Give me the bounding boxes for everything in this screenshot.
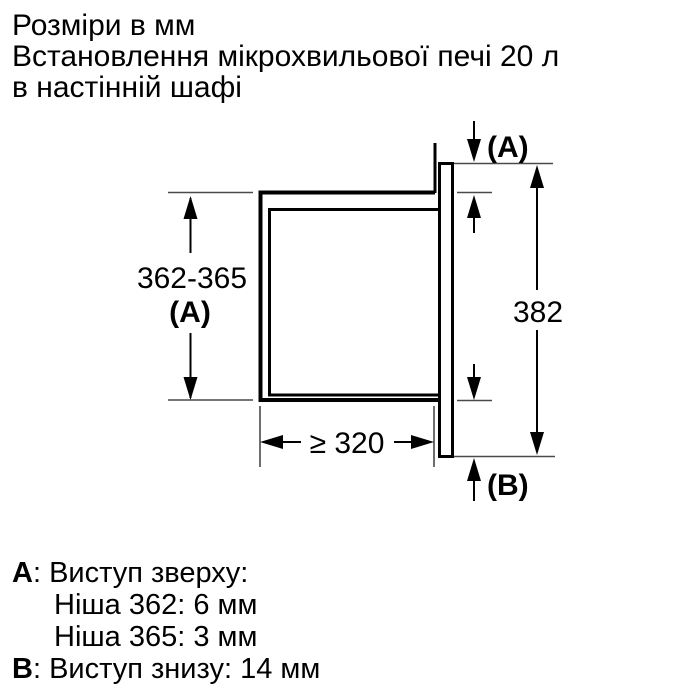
arrow-down-icon (467, 377, 481, 400)
note-a: A: Виступ зверху: (12, 557, 320, 589)
microwave-front-panel (440, 164, 453, 457)
arrow-up-icon (184, 196, 198, 219)
front-height-value: 382 (513, 296, 563, 329)
note-a-text: : Виступ зверху: (33, 557, 248, 589)
cabinet-inner-wall (270, 210, 442, 396)
arrow-right-icon (411, 435, 434, 449)
note-b-key: B (12, 653, 33, 685)
dimension-top-gap: (A) (467, 121, 529, 233)
dimension-niche-depth: ≥ 320 (260, 427, 434, 460)
note-b: B: Виступ знизу: 14 мм (12, 653, 320, 685)
cabinet-outer-wall (261, 193, 440, 401)
bottom-gap-label: (B) (487, 469, 529, 502)
niche-depth-value: ≥ 320 (310, 427, 385, 460)
top-gap-label: (A) (487, 131, 529, 164)
note-b-text: : Виступ знизу: 14 мм (33, 653, 320, 685)
dimension-bottom-gap: (B) (467, 364, 529, 502)
note-a-detail-2: Ніша 365: 3 мм (54, 621, 320, 653)
page: Розміри в мм Встановлення мікрохвильової… (0, 0, 700, 700)
arrow-down-icon (530, 432, 544, 455)
note-a-detail-1: Ніша 362: 6 мм (54, 589, 320, 621)
niche-height-value: 362-365 (137, 262, 247, 295)
notes: A: Виступ зверху: Ніша 362: 6 мм Ніша 36… (12, 557, 320, 685)
note-a-key: A (12, 557, 33, 589)
dimension-niche-height: 362-365 (A) (137, 196, 247, 400)
niche-height-label: (A) (169, 296, 211, 329)
arrow-down-icon (467, 139, 481, 162)
arrow-left-icon (260, 435, 283, 449)
arrow-up-icon (530, 165, 544, 188)
arrow-down-icon (184, 377, 198, 400)
cabinet-outline (261, 143, 442, 400)
dimension-front-height: 382 (513, 165, 563, 455)
